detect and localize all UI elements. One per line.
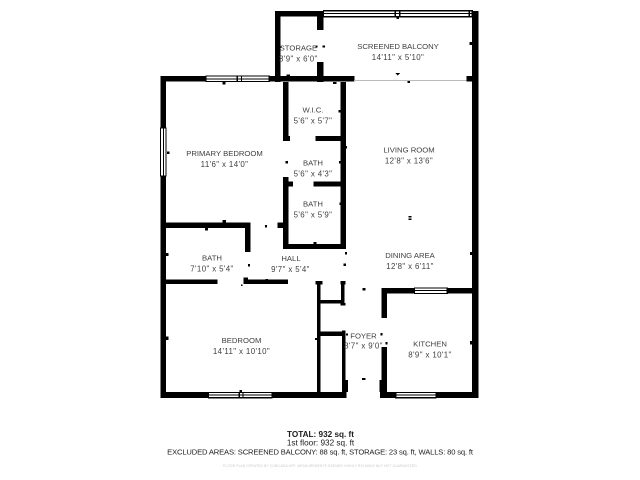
- svg-text:STORAGE: STORAGE: [280, 44, 317, 53]
- svg-text:EXCLUDED AREAS: SCREENED BALCO: EXCLUDED AREAS: SCREENED BALCONY: 88 sq.…: [167, 447, 474, 456]
- svg-text:FLOOR PLAN CREATED BY CUBICASA: FLOOR PLAN CREATED BY CUBICASA APP. MEAS…: [223, 464, 417, 468]
- svg-text:9'7" x 5'4": 9'7" x 5'4": [271, 265, 310, 274]
- svg-text:BATH: BATH: [303, 200, 323, 209]
- svg-text:12'8" x 13'6": 12'8" x 13'6": [385, 157, 433, 166]
- svg-text:12'8" x 6'11": 12'8" x 6'11": [386, 262, 434, 271]
- svg-text:5'6" x 4'3": 5'6" x 4'3": [294, 169, 333, 178]
- svg-text:KITCHEN: KITCHEN: [413, 339, 447, 348]
- svg-text:PRIMARY BEDROOM: PRIMARY BEDROOM: [186, 149, 263, 158]
- svg-text:3'7" x 9'0": 3'7" x 9'0": [344, 342, 383, 351]
- svg-text:BATH: BATH: [303, 158, 323, 167]
- svg-text:11'6" x 14'0": 11'6" x 14'0": [201, 160, 249, 169]
- svg-text:8'9" x 10'1": 8'9" x 10'1": [408, 350, 451, 359]
- svg-text:SCREENED BALCONY: SCREENED BALCONY: [357, 42, 439, 51]
- svg-text:5'6" x 5'7": 5'6" x 5'7": [294, 116, 333, 125]
- svg-text:LIVING ROOM: LIVING ROOM: [383, 146, 434, 155]
- svg-text:BATH: BATH: [202, 253, 222, 262]
- svg-text:14'11" x 5'10": 14'11" x 5'10": [372, 53, 424, 62]
- svg-text:HALL: HALL: [281, 254, 301, 263]
- svg-text:7'10" x 5'4": 7'10" x 5'4": [190, 264, 233, 273]
- svg-text:5'6" x 5'9": 5'6" x 5'9": [294, 211, 333, 220]
- svg-text:W.I.C.: W.I.C.: [303, 106, 324, 115]
- svg-text:FOYER: FOYER: [350, 332, 377, 341]
- svg-text:3'9" x 6'0": 3'9" x 6'0": [279, 54, 318, 63]
- svg-text:14'11" x 10'10": 14'11" x 10'10": [213, 347, 270, 356]
- svg-text:BEDROOM: BEDROOM: [222, 336, 262, 345]
- svg-text:1st floor: 932 sq. ft: 1st floor: 932 sq. ft: [287, 438, 355, 447]
- svg-text:DINING AREA: DINING AREA: [385, 251, 435, 260]
